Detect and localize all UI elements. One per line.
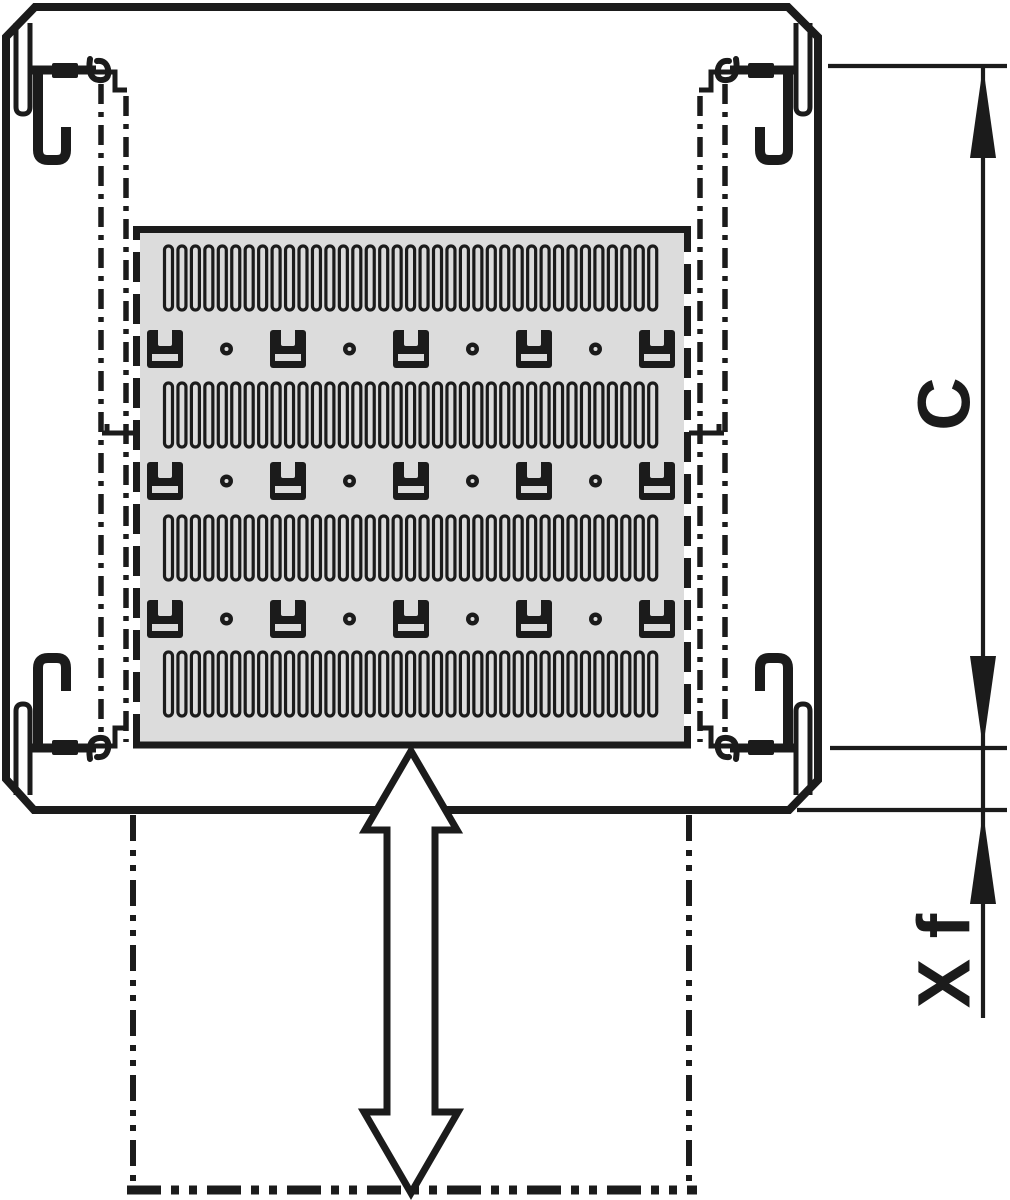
cable-tie-bracket [270, 598, 306, 638]
bracket-top-notch [158, 328, 172, 346]
bracket-top-notch [404, 598, 418, 616]
corner-assembly-top-left [16, 23, 127, 160]
cable-tie-bracket [147, 598, 183, 638]
rivet-dot-center [225, 347, 229, 351]
bracket-top-notch [158, 598, 172, 616]
bracket-tie-slot [152, 354, 178, 361]
bracket-tie-slot [644, 486, 670, 493]
rivet-dot-center [594, 617, 598, 621]
cable-tie-bracket [393, 598, 429, 638]
bracket-tie-slot [521, 354, 547, 361]
dimension-xf: X f [797, 810, 1007, 1008]
cable-tie-bracket [393, 460, 429, 500]
bracket-top-notch [527, 598, 541, 616]
cable-tie-bracket [639, 328, 675, 368]
dim-c-label: C [903, 377, 986, 430]
rivet-dot-center [594, 347, 598, 351]
cable-tie-bracket [639, 598, 675, 638]
bracket-top-notch [650, 328, 664, 346]
cable-tie-bracket [270, 328, 306, 368]
bracket-tie-slot [521, 486, 547, 493]
dim-xf-label: X f [903, 913, 986, 1008]
bracket-top-notch [158, 460, 172, 478]
bracket-tie-slot [644, 354, 670, 361]
dim-arrow-up-icon [970, 66, 996, 158]
bracket-tie-slot [275, 624, 301, 631]
cable-tie-bracket [639, 460, 675, 500]
rivet-dot-center [225, 617, 229, 621]
bracket-top-notch [527, 328, 541, 346]
cable-tie-bracket [270, 460, 306, 500]
cable-tie-bracket [147, 460, 183, 500]
rivet-dot-center [348, 347, 352, 351]
corner-assembly-top-right [699, 23, 810, 160]
bracket-top-notch [281, 460, 295, 478]
bracket-top-notch [404, 460, 418, 478]
rivet-dot-center [348, 479, 352, 483]
rivet-dot-center [594, 479, 598, 483]
bracket-top-notch [650, 460, 664, 478]
bracket-top-notch [281, 598, 295, 616]
cable-tie-bracket [516, 460, 552, 500]
bracket-tie-slot [398, 354, 424, 361]
cable-tie-bracket [516, 598, 552, 638]
corner-assembly-bottom-left [16, 658, 127, 795]
bracket-tie-slot [398, 624, 424, 631]
cable-tie-bracket [516, 328, 552, 368]
cable-tie-bracket [147, 328, 183, 368]
bracket-tie-slot [152, 486, 178, 493]
corner-assembly-bottom-right [699, 658, 810, 795]
technical-drawing-page: C X f [0, 0, 1010, 1200]
bracket-top-notch [527, 460, 541, 478]
dim-arrow-down-icon [970, 656, 996, 748]
shelf-panel [137, 230, 688, 746]
cable-tie-bracket [393, 328, 429, 368]
dim-arrow-up-icon [970, 812, 996, 904]
bracket-top-notch [404, 328, 418, 346]
rivet-dot-center [471, 347, 475, 351]
bracket-tie-slot [275, 486, 301, 493]
bracket-top-notch [650, 598, 664, 616]
bracket-tie-slot [644, 624, 670, 631]
bracket-top-notch [281, 328, 295, 346]
bracket-tie-slot [398, 486, 424, 493]
rivet-dot-center [348, 617, 352, 621]
technical-drawing: C X f [0, 0, 1010, 1200]
rivet-dot-center [471, 479, 475, 483]
rivet-dot-center [471, 617, 475, 621]
rivet-dot-center [225, 479, 229, 483]
slide-rail-stop-right [689, 424, 724, 434]
bracket-tie-slot [275, 354, 301, 361]
slide-direction-arrow [364, 751, 458, 1193]
slide-rail-stop-left [102, 424, 137, 434]
bracket-tie-slot [521, 624, 547, 631]
bracket-tie-slot [152, 624, 178, 631]
